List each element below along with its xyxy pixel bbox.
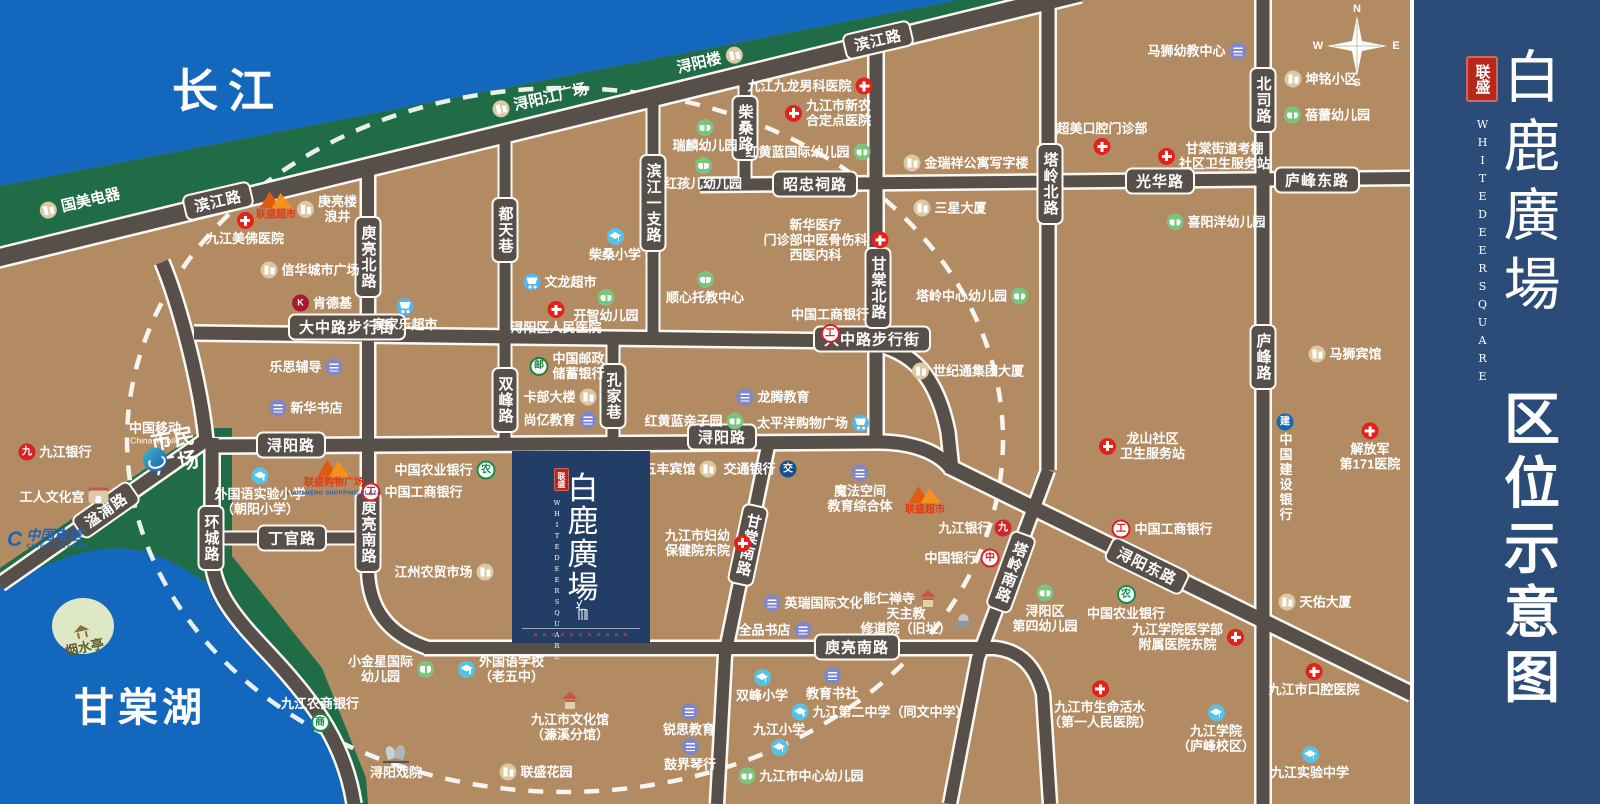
map-poi: 柴桑小学 <box>589 228 641 262</box>
liansheng-logo-icon <box>258 189 294 209</box>
hosp-icon <box>236 212 253 229</box>
map-poi: 锐思教育 <box>663 703 715 737</box>
road-label: 滨江一支路 <box>640 154 667 252</box>
kind-icon <box>694 157 711 174</box>
edu-icon <box>851 464 868 481</box>
banner-caption: 区 位 示 意 图 <box>1498 388 1566 710</box>
hosp-icon <box>547 301 564 318</box>
cart-icon <box>852 415 869 432</box>
map-poi: 新华医疗门诊部中医骨伤科西医内科 <box>763 217 888 262</box>
river-label: 长江 <box>172 55 284 121</box>
road-label: 都天巷 <box>492 197 519 263</box>
map-poi: 文龙超市 <box>523 274 596 291</box>
compass-w: W <box>1313 40 1323 52</box>
compass-n: N <box>1353 3 1361 15</box>
map-poi: 建中国建设银行 <box>1277 414 1294 523</box>
road-label: 丁官路 <box>257 525 327 552</box>
map-poi: 农中国农业银行 <box>1087 585 1165 621</box>
map-poi: 乐思辅导 <box>269 359 342 376</box>
map-poi: 九江九龙男科医院 <box>747 78 872 95</box>
road-label: 塔岭北路 <box>1037 143 1064 225</box>
map-poi: 世纪通集团大厦 <box>912 363 1024 380</box>
road-label: 浔阳路 <box>256 432 326 459</box>
map-poi: 九江市口腔医院 <box>1268 663 1359 697</box>
map-poi: 卡部大楼 <box>523 389 596 406</box>
map-poi: 红孩儿幼儿园 <box>664 157 742 191</box>
road-label: 庐峰路 <box>1250 324 1277 390</box>
abc-icon: 农 <box>477 461 496 480</box>
boc-icon: 中 <box>981 549 1000 568</box>
map-poi: 邮中国邮政储蓄银行 <box>529 351 604 381</box>
bldg-icon <box>724 45 744 65</box>
kind-icon <box>1011 288 1028 305</box>
map-poi: 双峰小学 <box>736 669 788 703</box>
edu-icon <box>269 400 286 417</box>
map-poi: 商九江农商银行 <box>281 696 359 732</box>
kind-icon <box>696 271 713 288</box>
kind-icon <box>1036 584 1053 601</box>
map-poi: 全品书店 <box>738 622 811 639</box>
map-poi: 龙山社区卫生服务站 <box>1099 431 1185 461</box>
map-poi: 九江学院医学部附属医院东院 <box>1132 622 1244 652</box>
kind-icon <box>696 119 713 136</box>
bldg-icon <box>903 155 920 172</box>
hosp-icon <box>1093 138 1110 155</box>
edu-icon <box>1230 43 1247 60</box>
kind-icon <box>854 144 871 161</box>
liansheng-logo-icon <box>907 484 943 504</box>
map-poi: 信华城市广场 <box>260 262 359 279</box>
map-poi: 中中国银行 <box>924 549 999 568</box>
map-poi: 尚亿教育 <box>523 412 596 429</box>
kfc-icon: K <box>292 295 309 312</box>
map-poi: 太平洋购物广场 <box>757 415 869 432</box>
block-tagline-marks <box>534 633 628 636</box>
abc-icon: 农 <box>1116 585 1135 604</box>
edu-icon <box>326 359 343 376</box>
map-poi: 红黄蓝国际幼儿园 <box>745 144 870 161</box>
map-poi: 马狮宾馆 <box>1308 346 1381 363</box>
school-icon <box>770 739 787 756</box>
map-poi: 解放军第171医院 <box>1340 422 1401 471</box>
liansheng-logo-icon <box>316 458 352 478</box>
china-telecom-logo-icon: C <box>7 529 22 550</box>
map-poi: K肯德基 <box>292 295 352 312</box>
psbc-icon: 邮 <box>529 357 548 376</box>
pav-icon <box>72 624 90 640</box>
edu-icon <box>681 738 698 755</box>
map-poi: 工中国工商银行 <box>1111 520 1212 539</box>
icbc-icon: 工 <box>1111 520 1130 539</box>
map-poi: 超美口腔门诊部 <box>1056 121 1147 155</box>
bldg-icon <box>580 389 597 406</box>
map-poi: 工人文化宫 <box>19 489 108 504</box>
map-poi: 蓓蕾幼儿园 <box>1284 107 1370 124</box>
kind-icon <box>727 413 744 430</box>
road-label: 庐峰东路 <box>1274 167 1360 194</box>
bldg-icon <box>1278 594 1295 611</box>
cart-icon <box>396 298 413 315</box>
school-icon <box>251 467 268 484</box>
banner-title: 白 鹿 廣 場 <box>1500 44 1564 320</box>
map-poi: 英瑞国际文化 <box>763 595 862 612</box>
map-poi: 教育书社 <box>806 667 858 701</box>
map-poi: 天主教修道院（旧址） <box>860 606 971 636</box>
map-poi: 联盛超市 <box>256 189 296 221</box>
edu-icon <box>580 412 597 429</box>
road-label: 庾亮南路 <box>814 634 900 661</box>
map-poi: 九江小学 <box>753 722 805 756</box>
bldg-icon <box>700 461 717 478</box>
kind-icon <box>597 289 614 306</box>
pagoda-icon <box>561 692 579 710</box>
map-poi: 甘棠街道考棚社区卫生服务站 <box>1158 141 1270 171</box>
road-label: 庾亮南路 <box>355 491 382 573</box>
map-poi: 工中国工商银行 <box>791 307 869 343</box>
map-poi: 外国语学校（老五中） <box>458 654 544 684</box>
hosp-icon <box>1361 422 1378 439</box>
map-poi: 联盛超市 <box>905 484 945 516</box>
map-poi: 江州农贸市场 <box>394 564 493 581</box>
cart-icon <box>523 274 540 291</box>
map-poi: 顺心托教中心 <box>666 271 744 305</box>
map-poi: 红黄蓝亲子园 <box>644 413 743 430</box>
edu-icon <box>680 703 697 720</box>
hosp-icon <box>1099 438 1116 455</box>
hosp-icon <box>1305 663 1322 680</box>
edu-icon <box>736 389 753 406</box>
map-poi: 联盛购物广场LIANSHENG SHOPPING PLAZA <box>287 458 382 497</box>
edu-icon <box>795 622 812 639</box>
bldg-icon <box>912 363 929 380</box>
project-block: 联盛 WHITEDEERSQUARE 白 鹿 廣 場 <box>512 451 650 643</box>
block-divider <box>522 628 640 629</box>
road-label: 光华路 <box>1125 168 1195 195</box>
banner-subtitle: WHITEDEERSQUARE <box>1476 118 1489 388</box>
hosp-icon <box>1158 148 1175 165</box>
bldg-icon <box>1284 71 1301 88</box>
map-poi: 小金星国际幼儿园 <box>348 654 434 684</box>
map-poi: 新华书店 <box>269 400 342 417</box>
project-title: 白 鹿 廣 場 <box>566 473 600 606</box>
map-poi: 九江第二中学（同文中学） <box>791 704 968 721</box>
school-icon <box>753 669 770 686</box>
bldg-icon <box>260 262 277 279</box>
map-poi: 农中国农业银行 <box>394 461 495 480</box>
banner-seal: 联盛 <box>1466 56 1498 102</box>
map-poi: 浔阳戏院 <box>370 744 422 780</box>
hosp-icon <box>1091 680 1108 697</box>
china-mobile-logo-icon <box>143 447 167 471</box>
map-poi: 庚亮楼浪井 <box>297 194 357 224</box>
lake-label: 甘棠湖 <box>74 675 206 733</box>
hosp-icon <box>785 105 802 122</box>
kind-icon <box>1284 107 1301 124</box>
road-label: 双峰路 <box>492 367 519 433</box>
bldg-icon <box>913 200 930 217</box>
map-poi: 马狮幼教中心 <box>1147 43 1246 60</box>
map-poi: C中国电信CHINA TELECOM <box>7 527 89 551</box>
map-poi: 中国移动China Mobile <box>129 421 181 472</box>
map-poi: 联盛花园 <box>499 764 572 781</box>
kind-icon <box>417 661 434 678</box>
ccb-icon: 建 <box>1277 414 1294 431</box>
jjb-icon: 九 <box>995 520 1012 537</box>
rcb-icon: 商 <box>310 713 329 732</box>
map-poi: 开智幼儿园 <box>573 289 638 323</box>
project-subtitle: WHITEDEERSQUARE <box>553 499 561 664</box>
map-poi: 九江市中心幼儿园 <box>738 768 863 785</box>
map-poi: 喜阳洋幼儿园 <box>1166 214 1265 231</box>
hosp-icon <box>872 231 889 248</box>
map-poi: 龙腾教育 <box>736 389 809 406</box>
hosp-icon <box>856 78 873 95</box>
school-icon <box>1207 704 1224 721</box>
icbc-icon: 工 <box>820 324 839 343</box>
temple-icon <box>956 613 972 629</box>
map-poi: 瑞麟幼儿园 <box>672 119 737 153</box>
school-icon <box>791 704 808 721</box>
bldg-icon <box>499 764 516 781</box>
location-map-poster: 长江 甘棠湖 市民 广场 N E S W 国美电器浔阳江广场浔阳楼 滨江路滨江路… <box>0 0 1600 804</box>
map-poi: 九江市文化馆（濂溪分馆） <box>531 692 609 742</box>
map-poi: 五丰宾馆 <box>643 461 716 478</box>
bldg-icon <box>1308 346 1325 363</box>
map-poi: 浔阳区第四幼儿园 <box>1012 584 1077 633</box>
bocom-icon: 交 <box>780 461 797 478</box>
map-poi: 魔法空间教育综合体 <box>827 464 892 513</box>
bldg-icon <box>477 564 494 581</box>
title-banner: 联盛 WHITEDEERSQUARE 白 鹿 廣 場 区 位 示 意 图 <box>1410 0 1600 804</box>
map-poi: 坤铭小区 <box>1284 71 1357 88</box>
map-poi: 鼓界琴行 <box>664 738 716 772</box>
gate-icon <box>89 490 109 503</box>
map-poi: 交交通银行 <box>723 461 796 478</box>
bldg-icon <box>491 99 511 119</box>
bldg-icon <box>38 200 58 220</box>
map-poi: 天佑大厦 <box>1278 594 1351 611</box>
school-icon <box>458 661 475 678</box>
kind-icon <box>738 768 755 785</box>
road-label: 昭忠祠路 <box>772 171 858 198</box>
school-icon <box>1301 746 1318 763</box>
road-label: 庾亮北路 <box>355 216 382 298</box>
opera-icon <box>383 744 409 763</box>
map-poi: 九九江银行 <box>938 520 1011 537</box>
map-poi: 九江实验中学 <box>1271 746 1349 780</box>
map-poi: 九九江银行 <box>18 444 91 461</box>
map-poi: 九江学院（庐峰校区） <box>1177 704 1255 753</box>
jjb-icon: 九 <box>18 444 35 461</box>
map-poi: 塔岭中心幼儿园 <box>916 288 1028 305</box>
school-icon <box>606 228 623 245</box>
map-poi: 九江市生命活水（第一人民医院） <box>1048 680 1152 729</box>
map-poi: 九江市妇幼保健院东院 <box>665 528 751 558</box>
road-label: 北司路 <box>1250 67 1277 133</box>
map-poi: 金瑞祥公寓写字楼 <box>903 155 1028 172</box>
kind-icon <box>1166 214 1183 231</box>
map-poi: 三星大厦 <box>913 200 986 217</box>
map-poi: 家家乐超市 <box>372 298 437 332</box>
edu-icon <box>823 667 840 684</box>
compass-e: E <box>1392 40 1399 52</box>
map-poi: 九江市新农合定点医院 <box>785 98 871 128</box>
edu-icon <box>763 595 780 612</box>
hosp-icon <box>1227 629 1244 646</box>
deer-icon <box>569 598 593 626</box>
bldg-icon <box>297 201 314 218</box>
hosp-icon <box>734 535 751 552</box>
